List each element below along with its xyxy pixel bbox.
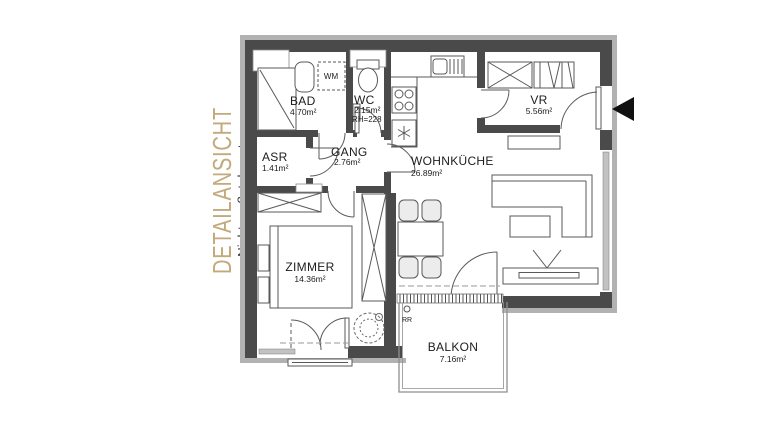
room-label-asr: ASR: [262, 150, 288, 164]
rain-pipe-icon: [404, 306, 410, 312]
dining-table: [398, 200, 443, 278]
detail-title: DETAILANSICHT: [207, 107, 237, 274]
tv-bench: [503, 250, 598, 284]
door-french: [291, 318, 349, 350]
room-area-balkon: 7.16m²: [440, 354, 467, 364]
coat-rack: [534, 62, 574, 88]
washing-machine: WM: [318, 62, 345, 90]
door-entrance: [561, 87, 601, 129]
floor-plan-page: DETAILANSICHT Nicht maßstabsgetreu: [0, 0, 768, 432]
sideboard: [508, 136, 560, 149]
room-area-vr: 5.56m²: [526, 106, 553, 116]
room-height-wc: RH=228: [352, 115, 382, 124]
room-label-zimmer: ZIMMER: [285, 260, 334, 274]
room-area-asr: 1.41m²: [262, 163, 289, 173]
vr-wardrobe: [488, 62, 532, 88]
room-label-balkon: BALKON: [428, 340, 479, 354]
window-sill: [288, 359, 352, 366]
door-balcony: [451, 252, 497, 298]
room-label-bad: BAD: [290, 94, 316, 108]
room-area-bad: 4.70m²: [290, 107, 317, 117]
wardrobe-top: [258, 193, 321, 212]
coffee-table: [510, 216, 550, 237]
washing-machine-label: WM: [324, 72, 339, 81]
balcony-threshold-hatch: [397, 294, 503, 303]
room-area-wc: 2.15m²: [354, 105, 381, 115]
room-area-wohnkueche: 26.89m²: [411, 168, 442, 178]
floor-plan: DETAILANSICHT Nicht maßstabsgetreu: [0, 0, 768, 432]
wardrobe-tall: [362, 194, 386, 301]
toilet: [357, 60, 379, 92]
stove: [392, 87, 416, 113]
door-zimmer: [328, 191, 354, 217]
room-area-zimmer: 14.36m²: [294, 274, 325, 284]
kitchen-counter: [391, 56, 477, 147]
washbasin: [295, 62, 314, 92]
plant: [354, 313, 384, 343]
door-vr: [481, 90, 509, 118]
appliance-asterisk-icon: [392, 120, 416, 146]
room-label-wohnkueche: WOHNKÜCHE: [411, 154, 494, 168]
rain-pipe-label: RR: [402, 317, 412, 324]
room-label-vr: VR: [530, 93, 547, 107]
room-area-gang: 2.76m²: [334, 157, 361, 167]
